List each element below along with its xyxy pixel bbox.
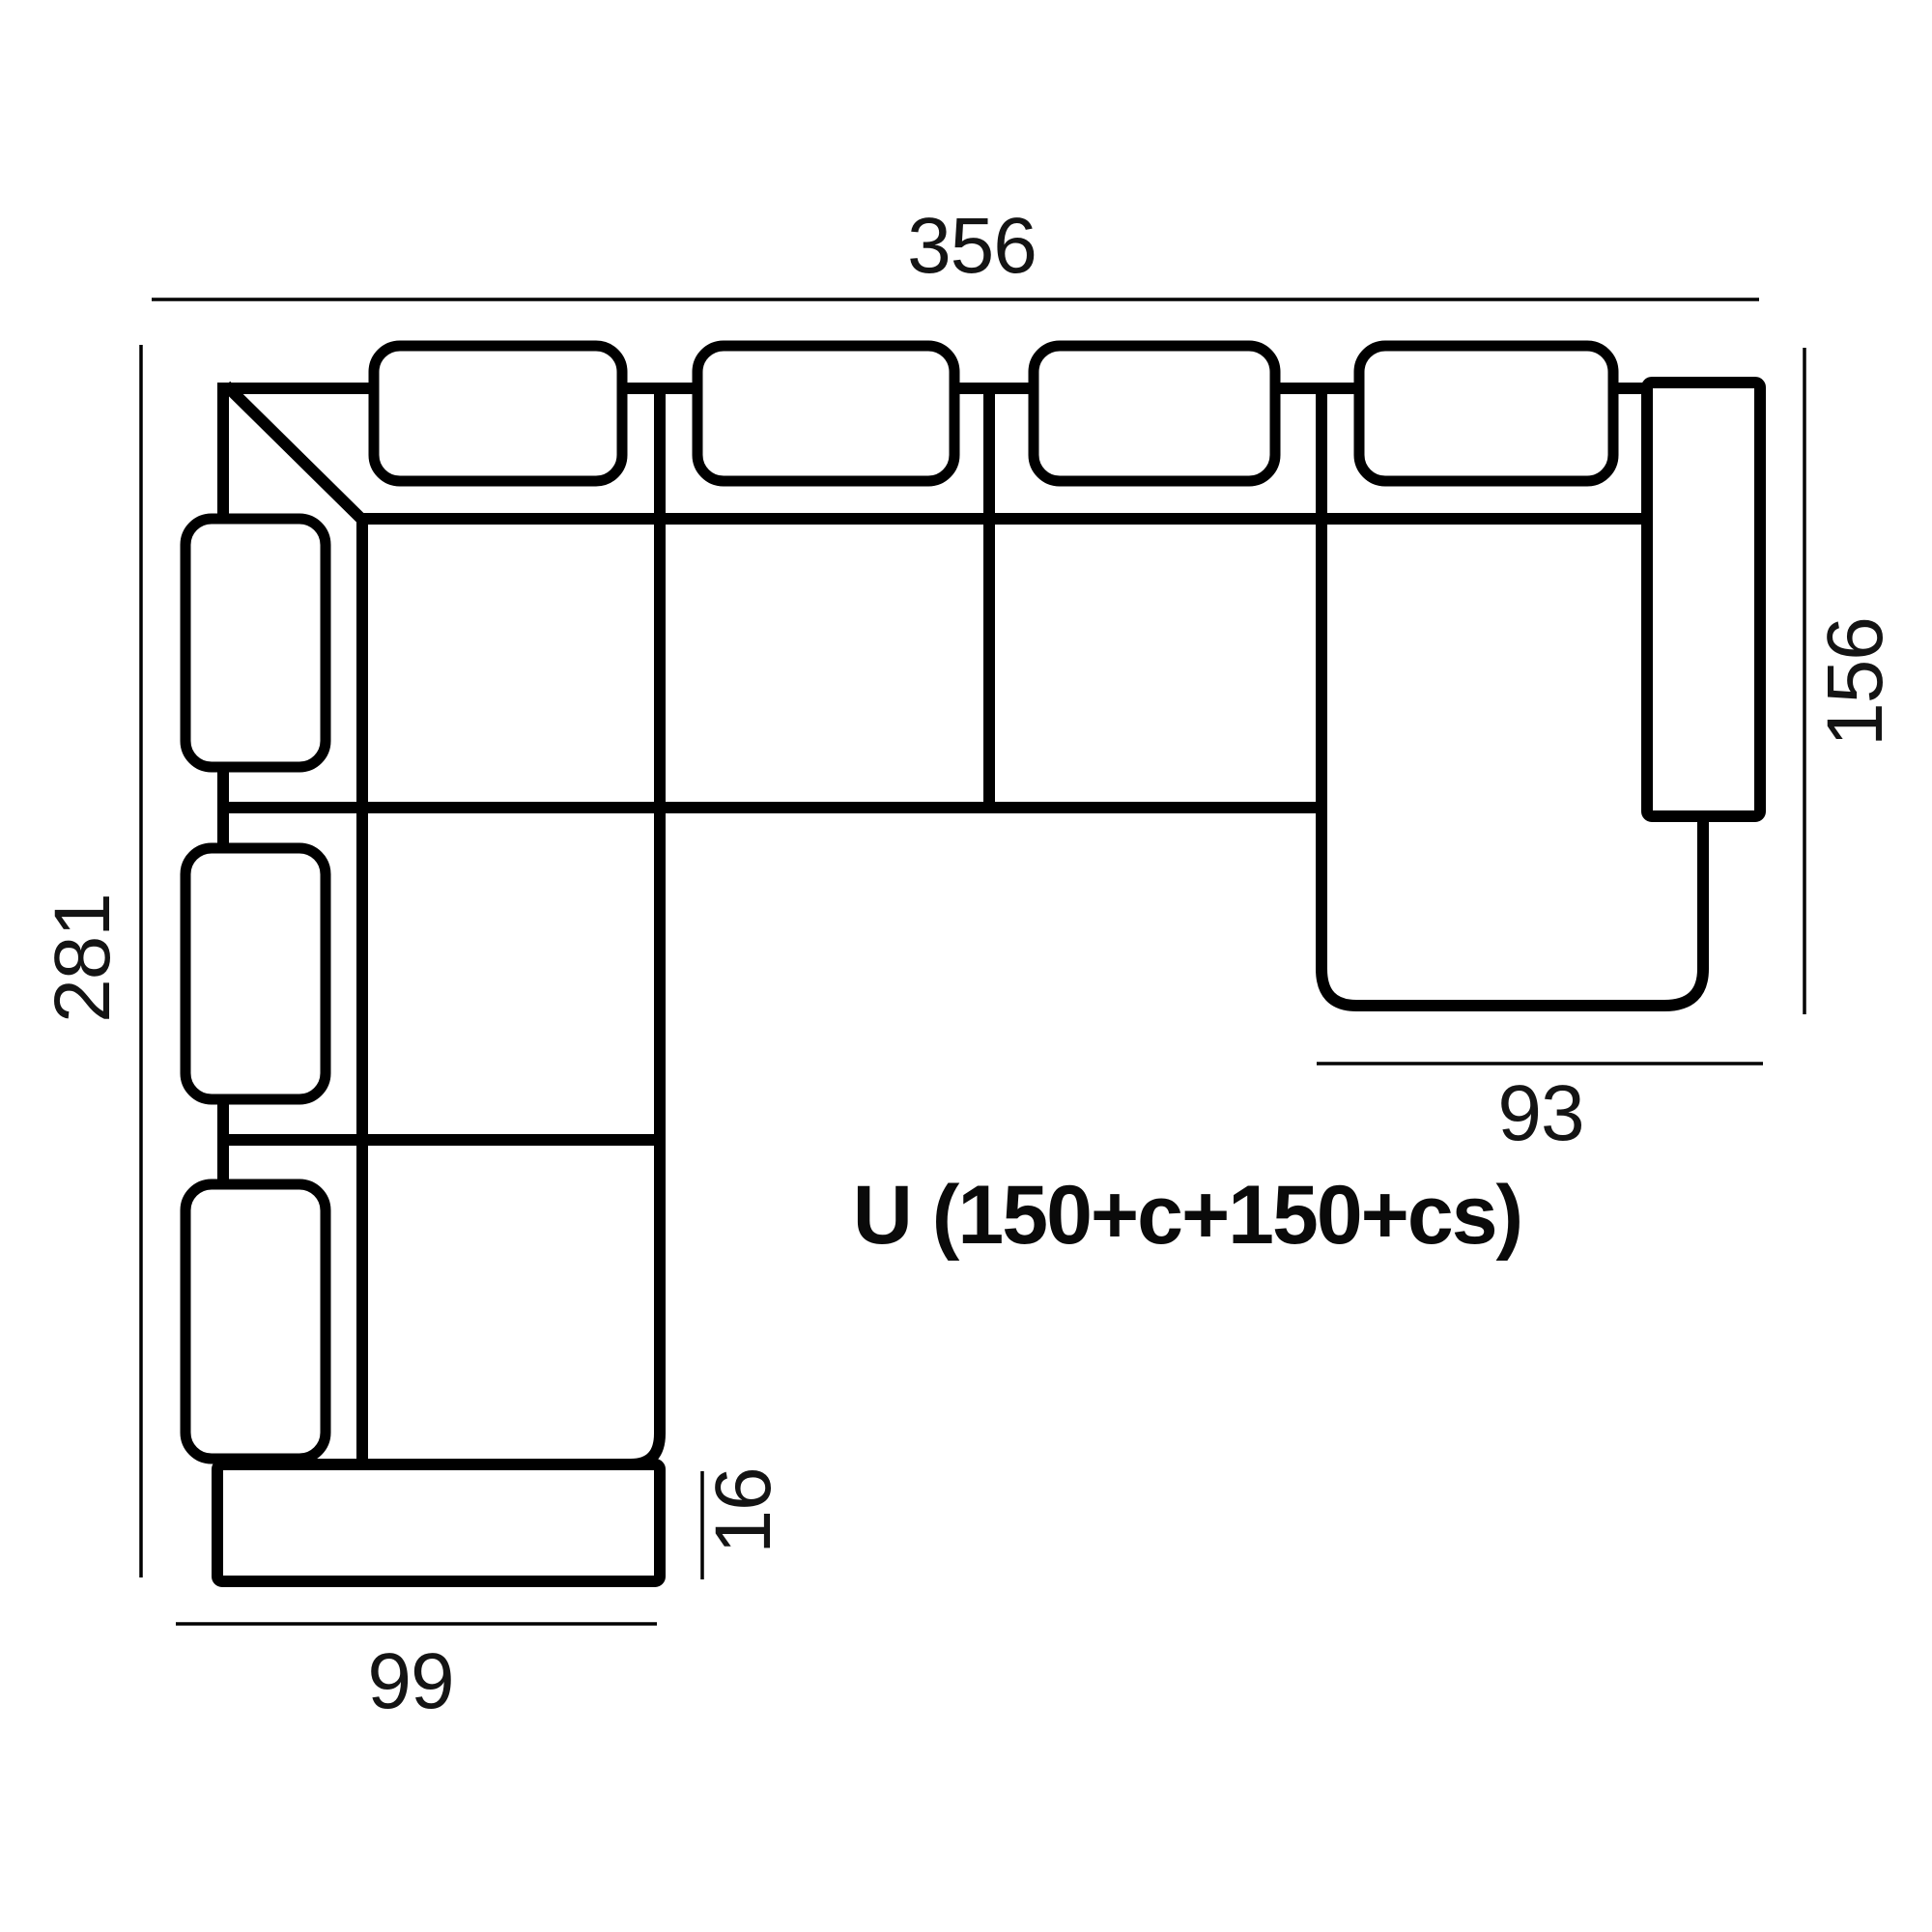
- dim-label-chaise-depth: 156: [1811, 617, 1899, 747]
- diagram-canvas: 356 281 156 93 16 99 U (150+c+150+cs): [0, 0, 1932, 1932]
- dim-label-total-depth: 281: [39, 894, 127, 1023]
- back-cushion: [1034, 346, 1275, 481]
- back-cushion: [185, 519, 326, 767]
- back-cushion: [697, 346, 954, 481]
- back-cushion: [185, 1184, 326, 1459]
- back-cushion: [1359, 346, 1613, 481]
- configuration-label: U (150+c+150+cs): [853, 1169, 1521, 1262]
- sofa-outline: [223, 383, 1703, 1470]
- back-cushion: [185, 848, 326, 1099]
- dim-label-armrest: 16: [699, 1467, 787, 1553]
- dim-label-total-width: 356: [907, 202, 1037, 290]
- dimension-lines: [141, 299, 1804, 1624]
- bottom-left-armrest: [217, 1464, 660, 1581]
- sofa-dimension-diagram: 356 281 156 93 16 99 U (150+c+150+cs): [0, 0, 1932, 1932]
- right-armrest: [1647, 383, 1760, 816]
- back-cushion: [374, 346, 622, 481]
- left-wing-front-edge: [623, 383, 660, 1464]
- dim-label-left-wing-width: 99: [367, 1637, 453, 1725]
- dim-label-chaise-width: 93: [1497, 1069, 1583, 1157]
- left-back-cushions: [185, 519, 326, 1459]
- corner-diagonal: [226, 385, 364, 522]
